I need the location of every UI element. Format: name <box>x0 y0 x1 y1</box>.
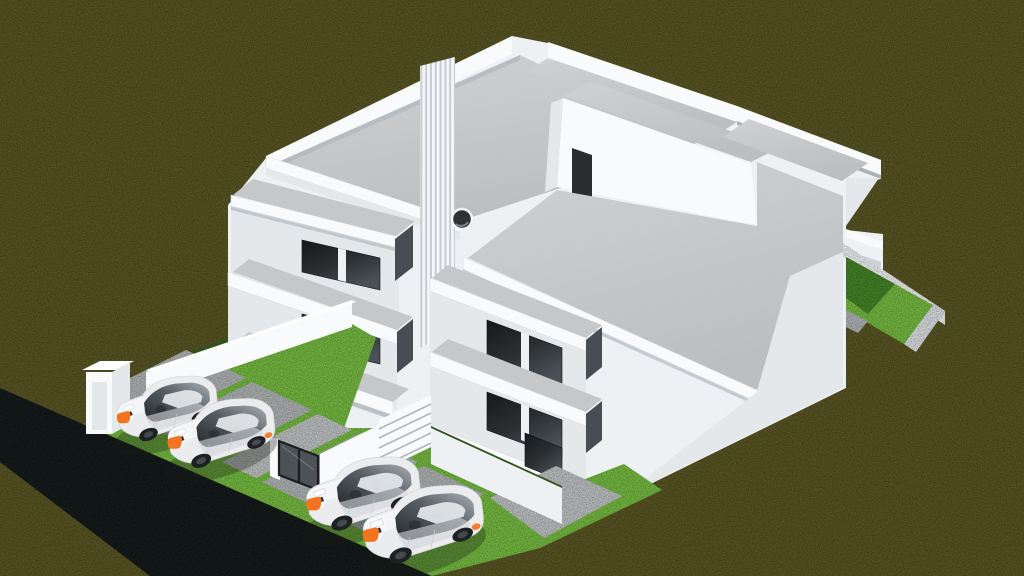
scene-svg: Isometric 3D rendering of a modern white… <box>0 0 1024 576</box>
left-upper-window-mullion <box>338 248 346 282</box>
center-upper-window-mullion <box>521 332 529 371</box>
render-viewport: Isometric 3D rendering of a modern white… <box>0 0 1024 576</box>
pillar-panel <box>92 382 107 430</box>
porthole-window <box>452 209 472 229</box>
